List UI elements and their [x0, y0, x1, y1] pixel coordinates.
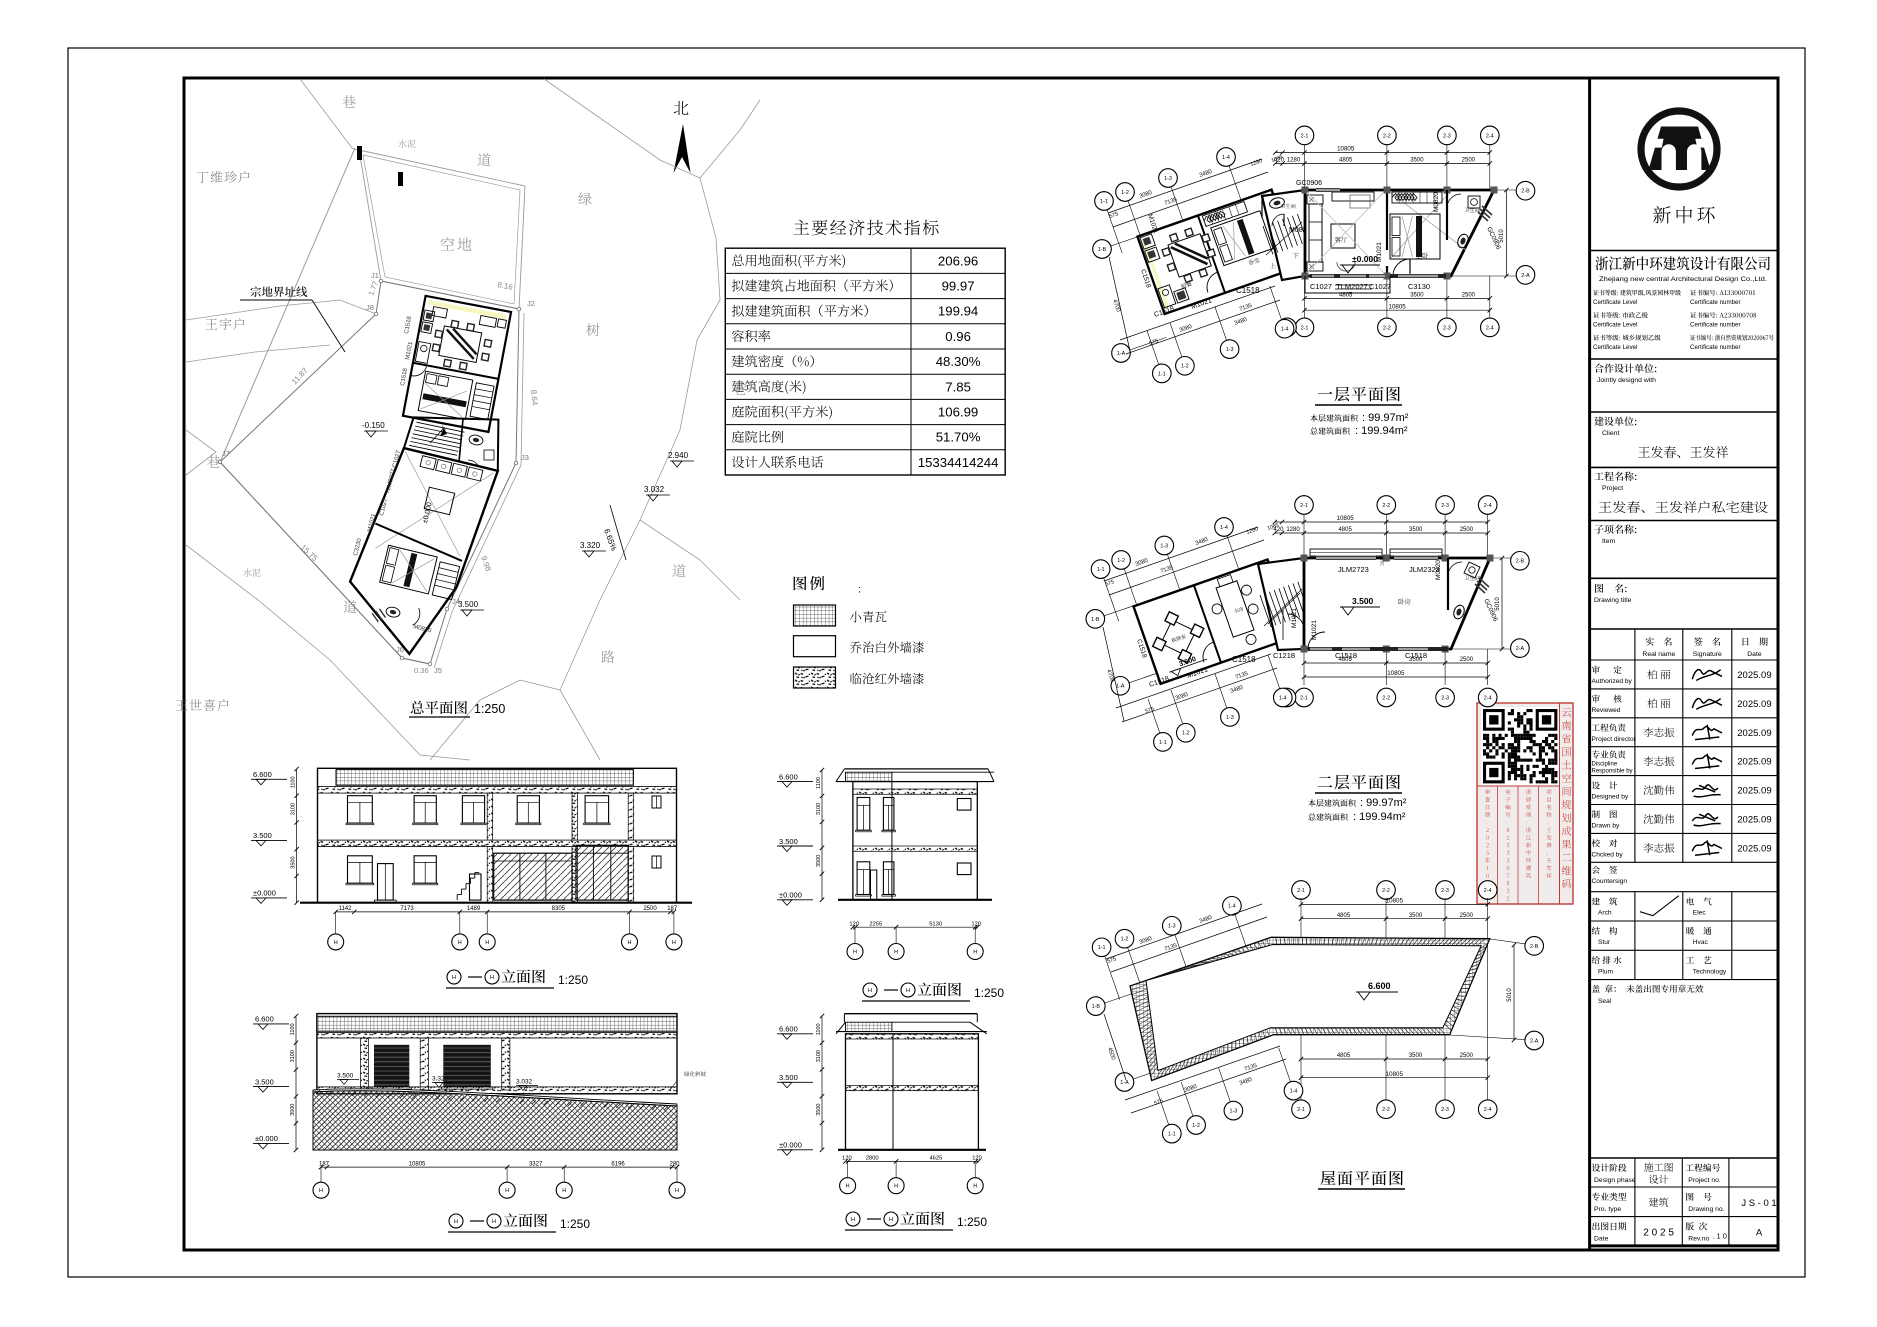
svg-text:206.96: 206.96 — [938, 253, 978, 268]
svg-text:M1021: M1021 — [1376, 242, 1383, 262]
svg-text:3500: 3500 — [291, 856, 297, 868]
svg-text:2-2: 2-2 — [1382, 1107, 1390, 1113]
svg-text:6.600: 6.600 — [779, 1025, 798, 1034]
svg-text:10805: 10805 — [409, 1161, 426, 1167]
svg-text:3.500: 3.500 — [779, 1073, 798, 1082]
svg-text:106.99: 106.99 — [938, 405, 978, 420]
svg-text:4625: 4625 — [929, 1156, 942, 1162]
svg-text:10805: 10805 — [1337, 515, 1355, 522]
svg-text:2-4: 2-4 — [1484, 888, 1492, 894]
svg-text:Countersign: Countersign — [1592, 878, 1628, 885]
svg-text:Elec: Elec — [1693, 910, 1707, 917]
svg-text:H: H — [485, 940, 489, 946]
svg-text:H: H — [889, 1217, 893, 1223]
svg-text:2-A: 2-A — [1530, 1038, 1539, 1044]
svg-text:1-2: 1-2 — [1117, 558, 1125, 564]
svg-text:1-A: 1-A — [1120, 1080, 1129, 1086]
svg-text:C1518: C1518 — [1405, 651, 1427, 660]
svg-text:2-A: 2-A — [1521, 273, 1530, 279]
svg-text:6.600: 6.600 — [255, 1015, 274, 1024]
svg-text:1-2: 1-2 — [1121, 190, 1129, 196]
svg-text:2025.09: 2025.09 — [1737, 728, 1771, 739]
svg-text:H: H — [906, 988, 910, 994]
svg-text:C1518: C1518 — [1335, 651, 1357, 660]
svg-text:1-2: 1-2 — [1181, 364, 1189, 370]
svg-text:H: H — [894, 949, 898, 955]
svg-text:0.36: 0.36 — [414, 666, 429, 675]
svg-text:±0.000: ±0.000 — [779, 891, 802, 900]
svg-text:5010: 5010 — [1507, 988, 1513, 1002]
svg-text:Certificate Level: Certificate Level — [1593, 299, 1637, 306]
svg-text:Stur: Stur — [1598, 939, 1611, 946]
svg-text:±0.000: ±0.000 — [1352, 254, 1378, 264]
svg-text:: 99.97m²: : 99.97m² — [1362, 412, 1409, 424]
svg-text:1-4: 1-4 — [1222, 155, 1230, 161]
svg-text:2-B: 2-B — [1516, 559, 1525, 565]
svg-text:6.600: 6.600 — [1368, 981, 1391, 991]
svg-text:8305: 8305 — [552, 906, 566, 912]
svg-text:H: H — [851, 1217, 855, 1223]
svg-text:Signature: Signature — [1693, 651, 1722, 658]
svg-text:M1021: M1021 — [1311, 620, 1318, 640]
svg-text:3.500: 3.500 — [253, 831, 272, 840]
svg-text:2025.09: 2025.09 — [1737, 815, 1771, 826]
svg-text:3100: 3100 — [291, 803, 297, 815]
svg-text:J1: J1 — [371, 271, 379, 280]
svg-text:1-1: 1-1 — [1100, 199, 1108, 205]
svg-text:H: H — [562, 1188, 566, 1194]
svg-text:1-2: 1-2 — [1121, 937, 1129, 943]
svg-text:Drawing no.: Drawing no. — [1688, 1206, 1724, 1213]
svg-text:: 99.97m²: : 99.97m² — [1360, 797, 1407, 809]
svg-text:10805: 10805 — [1386, 1071, 1404, 1078]
svg-text:1-3: 1-3 — [1226, 347, 1234, 353]
svg-text:H: H — [490, 975, 494, 981]
svg-text:1-2: 1-2 — [1192, 1123, 1200, 1129]
svg-text:Drawn by: Drawn by — [1592, 823, 1621, 830]
svg-text:C1218: C1218 — [1273, 651, 1295, 660]
svg-text:H: H — [505, 1188, 509, 1194]
svg-text:Authorized by: Authorized by — [1592, 678, 1633, 685]
svg-text:Arch: Arch — [1598, 910, 1612, 917]
svg-text:H: H — [458, 940, 462, 946]
svg-text:C1518: C1518 — [1232, 655, 1256, 664]
svg-text:120: 120 — [842, 1156, 852, 1162]
svg-text:Date: Date — [1747, 651, 1762, 658]
svg-text:H: H — [628, 940, 632, 946]
svg-text:H: H — [454, 1219, 458, 1225]
svg-text:99.97: 99.97 — [942, 279, 975, 294]
svg-text:1:250: 1:250 — [558, 973, 588, 987]
svg-text:120: 120 — [849, 921, 859, 927]
svg-text:H: H — [334, 940, 338, 946]
svg-text:Certificate Level: Certificate Level — [1593, 322, 1637, 329]
svg-text:M0820: M0820 — [1433, 192, 1440, 212]
svg-text:10805: 10805 — [1387, 670, 1405, 677]
svg-text:1-1: 1-1 — [1168, 1132, 1176, 1138]
svg-text:3100: 3100 — [816, 803, 822, 815]
svg-text:6.600: 6.600 — [253, 770, 272, 779]
svg-text:Real name: Real name — [1642, 651, 1675, 658]
svg-text:1100: 1100 — [291, 776, 297, 788]
svg-text:Client: Client — [1602, 430, 1619, 437]
svg-text:M1021: M1021 — [1291, 608, 1298, 628]
svg-text:1:250: 1:250 — [560, 1217, 590, 1231]
svg-text:3.320: 3.320 — [432, 1076, 449, 1083]
svg-text:2-3: 2-3 — [1441, 695, 1449, 701]
svg-text:C1027: C1027 — [1310, 282, 1332, 291]
svg-text:2255: 2255 — [869, 921, 882, 927]
svg-text:1-4: 1-4 — [1290, 1089, 1298, 1095]
svg-text:10805: 10805 — [1386, 898, 1404, 905]
svg-text:1-B: 1-B — [1098, 247, 1107, 253]
svg-text:J7: J7 — [222, 449, 230, 458]
svg-text:1-3: 1-3 — [1168, 924, 1176, 930]
svg-text:2025.09: 2025.09 — [1737, 843, 1771, 854]
svg-text:3.500: 3.500 — [1352, 596, 1374, 606]
svg-text:Drawing title: Drawing title — [1594, 597, 1632, 604]
svg-text:A: A — [1756, 1228, 1763, 1239]
svg-text:1-4: 1-4 — [1279, 695, 1287, 701]
svg-text:2-1: 2-1 — [1300, 503, 1308, 509]
svg-text:1:250: 1:250 — [957, 1215, 987, 1229]
svg-text:0.96: 0.96 — [945, 329, 971, 344]
svg-text:3327: 3327 — [529, 1161, 543, 1167]
svg-text:JLM2723: JLM2723 — [1338, 565, 1369, 574]
svg-text:Project director: Project director — [1592, 736, 1637, 743]
svg-text:1100: 1100 — [816, 1023, 822, 1035]
svg-text:187: 187 — [319, 1161, 330, 1167]
svg-text:±0.000: ±0.000 — [779, 1141, 802, 1150]
svg-text:5010: 5010 — [1495, 597, 1501, 611]
svg-text:1280: 1280 — [1286, 527, 1300, 533]
svg-text:2500: 2500 — [1462, 293, 1476, 299]
svg-text:Design phase: Design phase — [1594, 1177, 1636, 1184]
svg-text:3500: 3500 — [290, 1104, 296, 1116]
svg-text:Certificate number: Certificate number — [1690, 322, 1741, 329]
svg-text:2500: 2500 — [1460, 657, 1474, 663]
svg-text:2-A: 2-A — [1516, 646, 1525, 652]
svg-text:2500: 2500 — [1460, 913, 1474, 919]
svg-text:TLM2027: TLM2027 — [1336, 282, 1368, 291]
svg-text:120: 120 — [971, 921, 981, 927]
svg-text:H: H — [672, 940, 676, 946]
svg-text:J S - 0 1: J S - 0 1 — [1741, 1198, 1776, 1209]
svg-text:2500: 2500 — [643, 906, 657, 912]
svg-text:2-3: 2-3 — [1441, 1107, 1449, 1113]
svg-text:2-4: 2-4 — [1486, 325, 1494, 331]
svg-text:J2: J2 — [527, 299, 535, 308]
svg-text:1-B: 1-B — [1091, 617, 1100, 623]
svg-text:8.64: 8.64 — [529, 389, 539, 406]
svg-text:1-1: 1-1 — [1158, 371, 1166, 377]
svg-text:H: H — [868, 988, 872, 994]
svg-text:H: H — [492, 1219, 496, 1225]
svg-text:2025.09: 2025.09 — [1737, 757, 1771, 768]
svg-text:1-1: 1-1 — [1159, 740, 1167, 746]
svg-text:2-2: 2-2 — [1383, 325, 1391, 331]
svg-text:Pro. type: Pro. type — [1594, 1206, 1621, 1213]
svg-text:Responsible by: Responsible by — [1592, 769, 1633, 775]
svg-text:H: H — [853, 949, 857, 955]
svg-text:2500: 2500 — [1460, 1053, 1474, 1059]
svg-text:2-3: 2-3 — [1441, 503, 1449, 509]
svg-text:M0820: M0820 — [1435, 560, 1442, 580]
svg-text:1280: 1280 — [1287, 158, 1301, 164]
svg-text:4805: 4805 — [1338, 527, 1352, 533]
svg-text:Discipline: Discipline — [1592, 762, 1618, 768]
svg-text:±0.000: ±0.000 — [253, 889, 276, 898]
svg-text:Seal: Seal — [1598, 998, 1612, 1005]
svg-text:3500: 3500 — [1409, 1053, 1423, 1059]
svg-text:3500: 3500 — [816, 855, 822, 867]
svg-text:3.500: 3.500 — [255, 1077, 274, 1086]
svg-text:H: H — [973, 1184, 977, 1190]
svg-text:H: H — [846, 1184, 850, 1190]
svg-text:2-3: 2-3 — [1443, 133, 1451, 139]
svg-text:5130: 5130 — [929, 921, 942, 927]
svg-text:2500: 2500 — [1460, 527, 1474, 533]
svg-text:Rev.no: Rev.no — [1688, 1236, 1709, 1243]
svg-text:: 199.94m²: : 199.94m² — [1353, 811, 1406, 823]
svg-text:3500: 3500 — [1410, 158, 1424, 164]
svg-text:Plum: Plum — [1598, 968, 1614, 975]
svg-text:2-4: 2-4 — [1486, 133, 1494, 139]
svg-text:51.70%: 51.70% — [936, 430, 981, 445]
svg-text:1-4: 1-4 — [1281, 327, 1289, 333]
svg-text:Certificate number: Certificate number — [1690, 344, 1741, 351]
svg-text:3.500: 3.500 — [779, 837, 798, 846]
svg-text:3500: 3500 — [1409, 913, 1423, 919]
svg-text:4805: 4805 — [1339, 158, 1353, 164]
svg-text:3.500: 3.500 — [337, 1073, 354, 1080]
svg-text:1-2: 1-2 — [1182, 731, 1190, 737]
svg-text:H: H — [894, 1184, 898, 1190]
svg-text:2-1: 2-1 — [1300, 695, 1308, 701]
svg-text:3500: 3500 — [816, 1104, 822, 1116]
svg-text:. 1 0: . 1 0 — [1712, 1232, 1727, 1241]
svg-text:1100: 1100 — [816, 777, 822, 789]
svg-text:10805: 10805 — [1337, 146, 1355, 153]
svg-text:3.500: 3.500 — [458, 600, 479, 609]
svg-text:199.94: 199.94 — [938, 304, 978, 319]
svg-text:3100: 3100 — [290, 1050, 296, 1062]
svg-text:2500: 2500 — [1462, 158, 1476, 164]
svg-text:2800: 2800 — [866, 1156, 879, 1162]
svg-text:Item: Item — [1602, 538, 1616, 545]
svg-text:2-4: 2-4 — [1484, 1107, 1492, 1113]
svg-text:2025.09: 2025.09 — [1737, 699, 1771, 710]
svg-text:H: H — [973, 949, 977, 955]
svg-text:280: 280 — [669, 1161, 680, 1167]
svg-text:1-3: 1-3 — [1230, 1109, 1238, 1115]
svg-text:2025.09: 2025.09 — [1737, 786, 1771, 797]
svg-text:1:250: 1:250 — [974, 986, 1004, 1000]
svg-text:2 0 2 5: 2 0 2 5 — [1643, 1228, 1674, 1239]
svg-text:1-3: 1-3 — [1160, 543, 1168, 549]
svg-text:H: H — [452, 975, 456, 981]
svg-text:Reviewed: Reviewed — [1592, 707, 1621, 714]
svg-text:1-4: 1-4 — [1228, 904, 1236, 910]
svg-text:187: 187 — [667, 906, 678, 912]
svg-text:1142: 1142 — [339, 906, 353, 912]
svg-text:1-A: 1-A — [1117, 351, 1126, 357]
svg-text:C1027: C1027 — [1369, 282, 1391, 291]
svg-text:2-2: 2-2 — [1382, 888, 1390, 894]
svg-text:3500: 3500 — [1409, 527, 1423, 533]
svg-text:Jointly designd with: Jointly designd with — [1597, 377, 1656, 384]
svg-text:10805: 10805 — [1389, 303, 1407, 310]
svg-text:3.032: 3.032 — [644, 485, 665, 494]
svg-text:J8: J8 — [366, 303, 374, 312]
svg-text:Project no.: Project no. — [1688, 1177, 1721, 1184]
svg-text:7.85: 7.85 — [945, 379, 971, 394]
svg-text:Technology: Technology — [1693, 968, 1727, 975]
svg-text:1-A: 1-A — [1116, 684, 1125, 690]
svg-text:Designed by: Designed by — [1592, 794, 1629, 801]
svg-text:2-B: 2-B — [1521, 189, 1530, 195]
svg-text:15334414244: 15334414244 — [918, 455, 999, 470]
svg-text:2-2: 2-2 — [1383, 133, 1391, 139]
svg-text:2-1: 2-1 — [1301, 325, 1309, 331]
svg-text:C3130: C3130 — [1408, 282, 1430, 291]
svg-text:3500: 3500 — [1410, 293, 1424, 299]
svg-text:C1518: C1518 — [1236, 286, 1260, 295]
svg-text:Date: Date — [1594, 1236, 1609, 1243]
svg-text:H: H — [675, 1188, 679, 1194]
svg-text:H: H — [319, 1188, 323, 1194]
svg-text:2-4: 2-4 — [1484, 503, 1492, 509]
svg-text:Chcked by: Chcked by — [1592, 851, 1624, 858]
svg-text:1-B: 1-B — [1092, 1004, 1101, 1010]
svg-text:4805: 4805 — [1337, 1053, 1351, 1059]
svg-text:2-1: 2-1 — [1297, 888, 1305, 894]
svg-text:Certificate Level: Certificate Level — [1593, 344, 1637, 351]
svg-text:2-1: 2-1 — [1301, 133, 1309, 139]
svg-text:2-B: 2-B — [1530, 944, 1539, 950]
svg-text:GC0906: GC0906 — [1296, 180, 1322, 187]
svg-text:1-3: 1-3 — [1226, 715, 1234, 721]
svg-text:2-1: 2-1 — [1297, 1107, 1305, 1113]
svg-text:2-4: 2-4 — [1484, 695, 1492, 701]
svg-text:Zhejiang new central Architect: Zhejiang new central Architectural Desig… — [1599, 276, 1767, 283]
svg-text:1-1: 1-1 — [1097, 567, 1105, 573]
svg-text:6.600: 6.600 — [779, 772, 798, 781]
svg-text:2.940: 2.940 — [668, 451, 689, 460]
svg-text:120: 120 — [972, 1156, 982, 1162]
svg-text:±0.000: ±0.000 — [255, 1134, 278, 1143]
svg-text:2-3: 2-3 — [1443, 325, 1451, 331]
svg-text:4805: 4805 — [1337, 913, 1351, 919]
svg-text:3100: 3100 — [816, 1050, 822, 1062]
svg-text:J3: J3 — [521, 453, 529, 462]
svg-text:1489: 1489 — [467, 906, 481, 912]
svg-text:3.032: 3.032 — [516, 1079, 533, 1086]
svg-text:Project: Project — [1602, 485, 1623, 492]
svg-text:1-4: 1-4 — [1220, 525, 1228, 531]
svg-text:1-3: 1-3 — [1164, 176, 1172, 182]
svg-text:48.30%: 48.30% — [936, 354, 981, 369]
svg-text:6196: 6196 — [611, 1161, 625, 1167]
svg-text:: 199.94m²: : 199.94m² — [1355, 425, 1408, 437]
svg-text:2025.09: 2025.09 — [1737, 670, 1771, 681]
svg-text:1100: 1100 — [290, 1023, 296, 1035]
svg-text:7173: 7173 — [400, 906, 414, 912]
svg-text:2-3: 2-3 — [1441, 888, 1449, 894]
svg-text:2-2: 2-2 — [1382, 695, 1390, 701]
svg-text:-0.150: -0.150 — [362, 421, 385, 430]
svg-text:5010: 5010 — [1499, 229, 1505, 243]
svg-text:Certificate number: Certificate number — [1690, 299, 1741, 306]
svg-text:J5: J5 — [434, 666, 442, 675]
svg-text:3.320: 3.320 — [580, 541, 601, 550]
svg-text:1-1: 1-1 — [1098, 945, 1106, 951]
svg-text:Hvac: Hvac — [1693, 939, 1709, 946]
svg-text:2-2: 2-2 — [1382, 503, 1390, 509]
svg-text:1:250: 1:250 — [474, 702, 505, 716]
